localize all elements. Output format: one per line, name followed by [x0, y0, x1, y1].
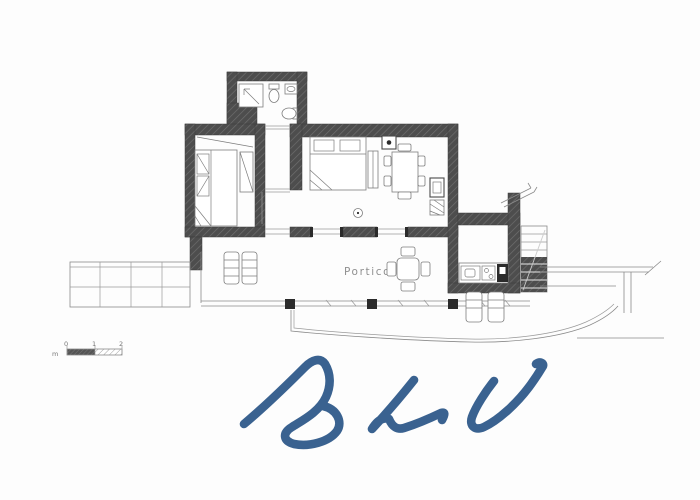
bedroom	[195, 137, 253, 226]
scale-segment-dark	[67, 349, 95, 355]
watermark-letter-b	[244, 360, 339, 445]
scale-tick-0: 0	[64, 340, 68, 348]
chair	[384, 176, 391, 186]
watermark-letter-u	[471, 363, 543, 429]
shower-icon	[239, 84, 263, 107]
watermark-blu: BLU	[244, 360, 543, 445]
bathroom-door-threshold	[265, 126, 290, 129]
wall-bedroom-bottom	[185, 227, 265, 237]
pergola-grid	[70, 262, 190, 307]
wall-living-bottom-a	[290, 227, 312, 237]
toilet-tank	[269, 84, 279, 89]
scale-bar: m 0 1 2	[52, 340, 123, 358]
dining-table-icon	[392, 152, 418, 192]
wall-bathroom-top	[227, 72, 307, 81]
retaining-line-tick	[645, 261, 661, 275]
window-jamb	[310, 227, 313, 237]
window-jamb	[375, 227, 378, 237]
ceiling-slope-line	[197, 137, 253, 147]
chair	[398, 192, 411, 199]
portico-column	[448, 299, 458, 309]
french-window-1	[312, 229, 343, 234]
external-staircase	[521, 226, 547, 292]
scale-unit-label: m	[52, 350, 58, 358]
patio-chair	[401, 247, 415, 256]
toilet-icon	[269, 90, 279, 103]
bidet-icon	[282, 108, 296, 119]
wall-bathroom-right	[297, 72, 307, 127]
stove-dot	[387, 140, 392, 145]
oven-inner	[500, 267, 506, 274]
floorplan-image: Portico m 0 1 2	[0, 0, 700, 500]
wall-portico-stub	[190, 237, 202, 270]
chair	[418, 176, 425, 186]
window-jamb	[405, 227, 408, 237]
living-room	[310, 136, 444, 218]
patio-chair	[421, 262, 430, 276]
wall-bedroom-left	[185, 124, 195, 237]
wall-band-right	[290, 124, 458, 137]
patio-chair	[401, 282, 415, 291]
sofa-bed-icon	[310, 137, 366, 190]
wall-band-left	[185, 124, 265, 135]
wall-living-left	[290, 124, 302, 190]
garden-curve-outer	[291, 306, 618, 342]
garden-curve-inner	[294, 304, 614, 339]
scale-segment-light	[95, 349, 122, 355]
corridor-exit-threshold	[265, 229, 290, 234]
window-jamb	[340, 227, 343, 237]
vertical-edge	[624, 272, 631, 313]
scale-tick-1: 1	[92, 340, 96, 348]
wall-kitchen-right	[508, 193, 520, 293]
patio-chair	[387, 262, 396, 276]
wall-kitchen-bottom	[448, 283, 520, 293]
pergola-lines	[70, 262, 190, 307]
corridor-door-threshold	[265, 189, 290, 192]
watermark-letter-l	[372, 380, 444, 429]
retaining-line-top	[540, 267, 653, 272]
chair	[418, 156, 425, 166]
stair-lower-flight	[521, 257, 547, 292]
lounger-icon	[488, 292, 504, 322]
pergola-outline	[70, 262, 190, 307]
fridge-icon	[430, 178, 444, 197]
patio-table-icon	[397, 258, 419, 280]
wall-living-right	[448, 124, 458, 293]
floorplan-svg: Portico m 0 1 2	[0, 0, 700, 500]
portico-column	[285, 299, 295, 309]
chair	[384, 156, 391, 166]
portico-column	[367, 299, 377, 309]
chair	[398, 144, 411, 151]
lounger-icon	[466, 292, 482, 322]
french-window-2	[377, 229, 408, 234]
portico-label: Portico	[344, 266, 391, 278]
scale-tick-2: 2	[119, 340, 123, 348]
wall-bedroom-right	[255, 124, 265, 227]
fixture-dot	[357, 212, 359, 214]
wall-living-bottom-b	[343, 227, 377, 237]
